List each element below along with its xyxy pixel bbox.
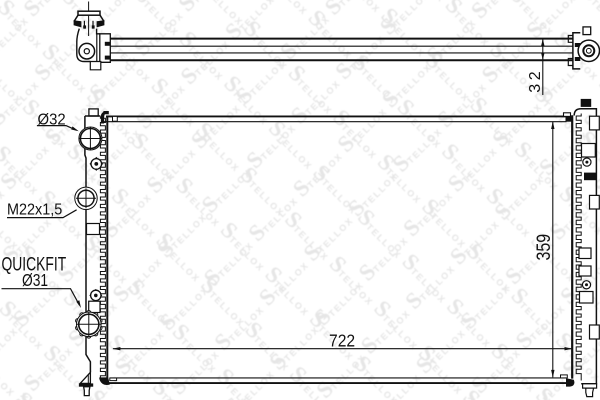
svg-text:M22x1,5: M22x1,5	[7, 201, 62, 219]
svg-text:359: 359	[532, 234, 554, 261]
svg-text:722: 722	[329, 331, 355, 351]
svg-text:Ø31: Ø31	[22, 272, 48, 291]
